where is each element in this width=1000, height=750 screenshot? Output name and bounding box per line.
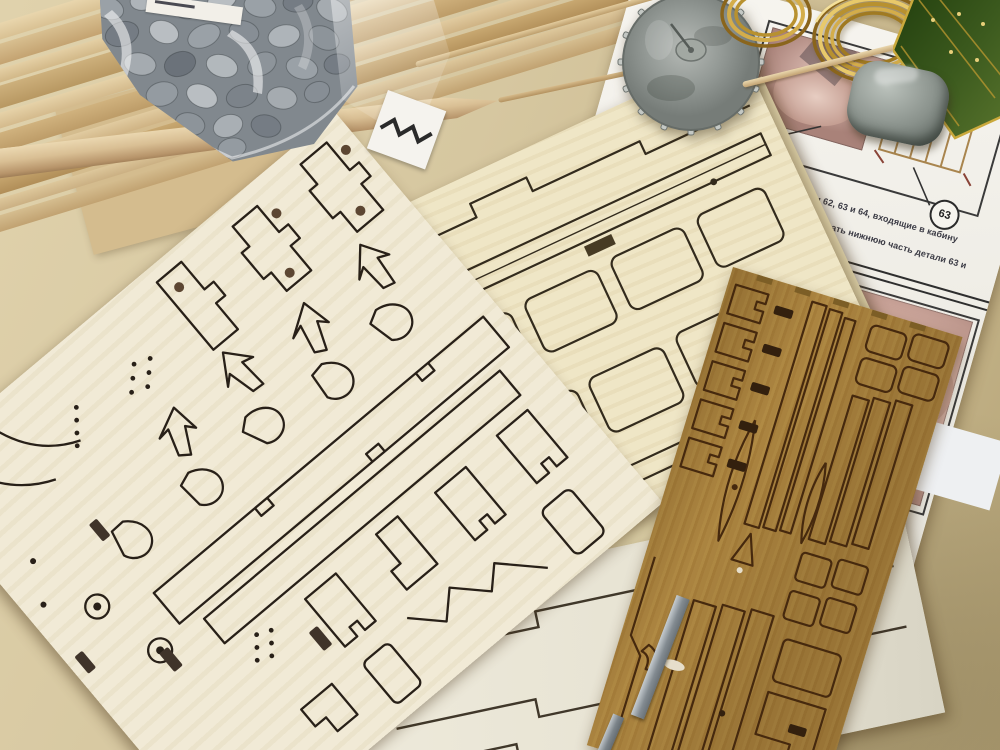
brass-coil-small <box>716 0 816 56</box>
casting-glint <box>874 65 919 86</box>
photo-scene: 62 63 Закрепить детали 62, 63 и 64, вход… <box>0 0 1000 750</box>
step-63-label: 63 <box>937 207 952 222</box>
label-print <box>155 0 195 9</box>
